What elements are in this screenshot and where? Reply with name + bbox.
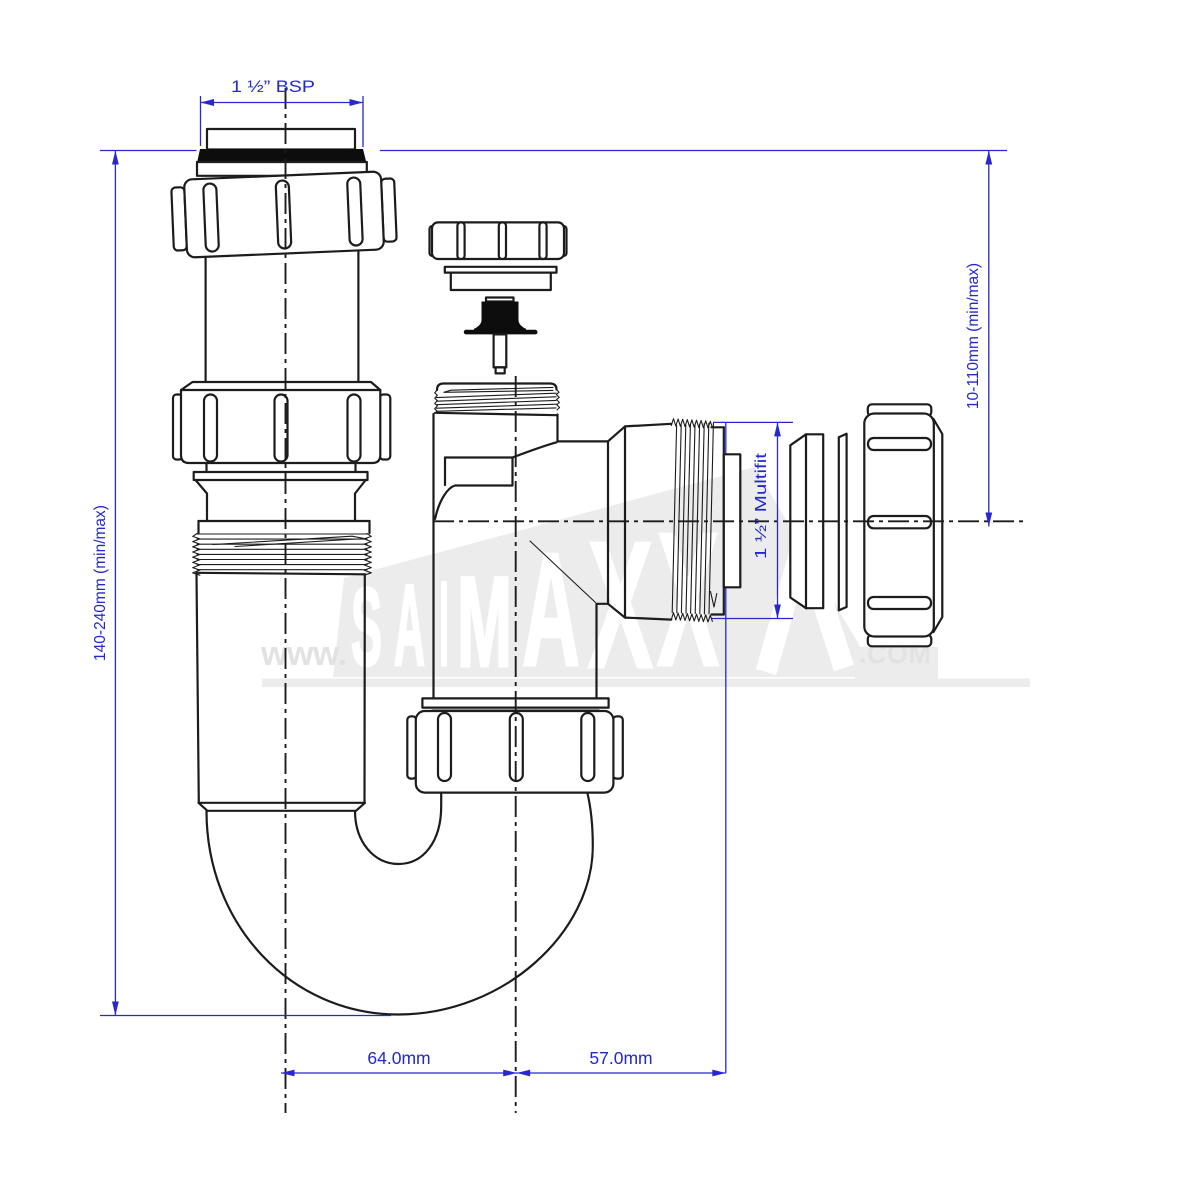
svg-text:140-240mm (min/max): 140-240mm (min/max): [92, 505, 109, 661]
svg-text:X: X: [588, 505, 653, 706]
svg-text:57.0mm: 57.0mm: [589, 1048, 652, 1068]
svg-text:S: S: [351, 566, 382, 689]
svg-text:10-110mm (min/max): 10-110mm (min/max): [965, 263, 982, 409]
svg-text:1 ½” Multifit: 1 ½” Multifit: [753, 452, 770, 559]
svg-text:A: A: [394, 562, 425, 690]
svg-text:64.0mm: 64.0mm: [367, 1048, 430, 1068]
svg-text:1 ½” BSP: 1 ½” BSP: [231, 78, 315, 96]
svg-text:M: M: [457, 551, 512, 694]
svg-text:A: A: [522, 520, 580, 700]
svg-text:www.: www.: [260, 635, 347, 673]
svg-text:I: I: [439, 557, 449, 691]
